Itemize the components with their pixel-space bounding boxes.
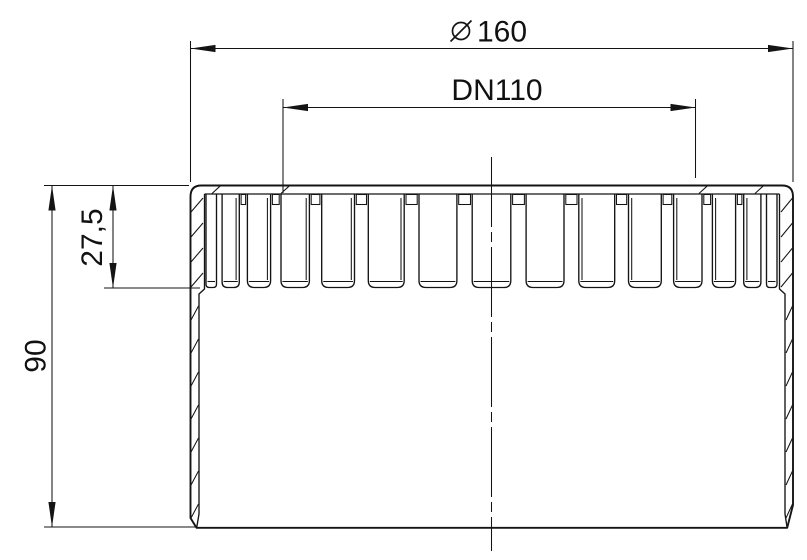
hatch-mark bbox=[781, 198, 793, 212]
slot bbox=[629, 194, 662, 287]
slot bbox=[674, 194, 702, 287]
dimension-label-slot-depth: 27,5 bbox=[76, 208, 109, 266]
slot bbox=[744, 194, 761, 287]
slot bbox=[206, 194, 217, 287]
arrowhead bbox=[191, 45, 216, 52]
slot bbox=[579, 194, 615, 287]
hatch-mark bbox=[781, 273, 793, 287]
rim-chamfer-mark bbox=[755, 186, 763, 193]
rib-cap bbox=[459, 195, 471, 205]
dimension-label-overall-height: 90 bbox=[20, 339, 53, 372]
slot bbox=[222, 194, 239, 287]
hatch-mark bbox=[191, 372, 199, 386]
rib-cap bbox=[566, 195, 577, 205]
dimension-label-nominal-width: DN110 bbox=[451, 74, 542, 107]
rib-cap bbox=[406, 195, 417, 205]
rib-cap bbox=[617, 195, 627, 205]
wall-inner-right bbox=[780, 194, 788, 527]
slot bbox=[368, 194, 404, 287]
hatch-mark bbox=[786, 306, 793, 320]
arrowhead bbox=[109, 263, 116, 288]
slot bbox=[322, 194, 355, 287]
diameter-symbol-icon bbox=[451, 21, 472, 42]
slot bbox=[419, 194, 457, 287]
hatch-mark bbox=[191, 471, 199, 485]
arrowhead bbox=[109, 186, 116, 211]
hatch-mark bbox=[191, 223, 203, 237]
hatch-mark bbox=[786, 339, 793, 353]
dimension-nominal-width: DN110 bbox=[283, 74, 696, 193]
arrowhead bbox=[48, 186, 55, 211]
rim-chamfer-mark bbox=[699, 186, 707, 193]
rib-cap bbox=[311, 195, 320, 205]
hatch-mark bbox=[191, 306, 199, 320]
rib-cap bbox=[241, 195, 246, 205]
hatch-mark bbox=[191, 273, 203, 287]
arrowhead bbox=[671, 104, 696, 111]
hatch-mark bbox=[786, 438, 793, 452]
rib-cap bbox=[272, 195, 279, 205]
hatch-mark bbox=[191, 438, 199, 452]
rib-cap bbox=[663, 195, 672, 205]
technical-drawing-canvas: 160 DN110 27,5 90 bbox=[0, 0, 807, 560]
rim-chamfer-mark bbox=[281, 186, 289, 193]
hatch-mark bbox=[191, 198, 203, 212]
slot bbox=[526, 194, 564, 287]
hatch-mark bbox=[191, 405, 199, 419]
hatch-mark bbox=[191, 339, 199, 353]
wall-inner-left bbox=[197, 194, 205, 527]
hatch-mark bbox=[781, 223, 793, 237]
hatch-mark bbox=[191, 248, 203, 262]
slotted-collar-front-view: 160 DN110 27,5 90 bbox=[0, 0, 807, 560]
slot bbox=[767, 194, 778, 287]
hatch-mark bbox=[191, 504, 199, 518]
hatch-mark bbox=[786, 471, 793, 485]
rib-cap bbox=[356, 195, 366, 205]
rim-chamfer-mark bbox=[212, 186, 220, 193]
slot bbox=[281, 194, 309, 287]
dimension-slot-depth: 27,5 bbox=[44, 186, 200, 289]
hatch-mark bbox=[781, 248, 793, 262]
arrowhead bbox=[48, 502, 55, 527]
arrowhead bbox=[283, 104, 308, 111]
dimension-label-diameter: 160 bbox=[477, 16, 527, 49]
hatch-mark bbox=[786, 405, 793, 419]
hatch-mark bbox=[786, 372, 793, 386]
rib-cap bbox=[737, 195, 742, 205]
arrowhead bbox=[768, 45, 793, 52]
rib-cap bbox=[704, 195, 711, 205]
rib-cap bbox=[513, 195, 525, 205]
